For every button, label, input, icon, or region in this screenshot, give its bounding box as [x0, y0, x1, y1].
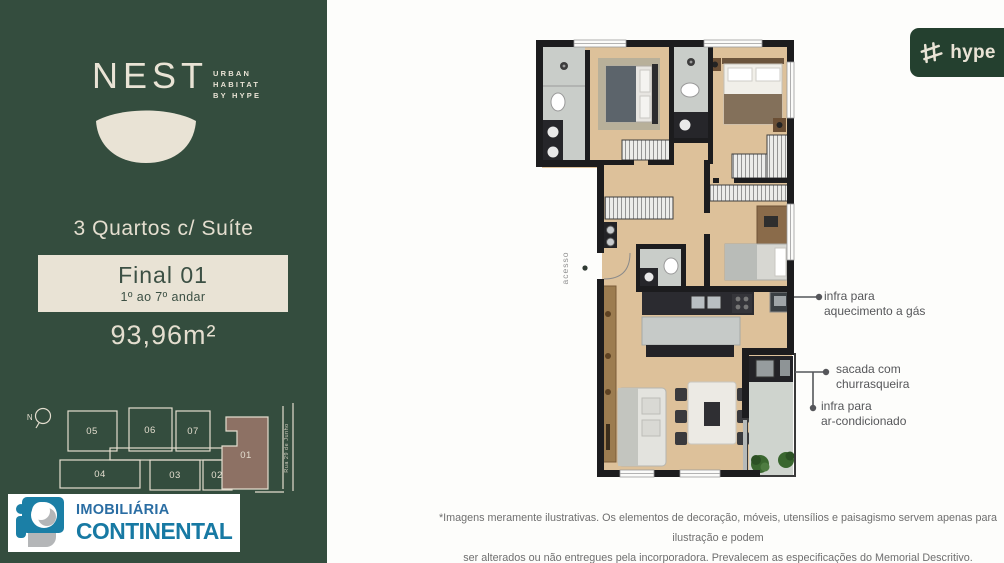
annotation-gas: infra para aquecimento a gás [824, 289, 925, 319]
final-badge: Final 01 1º ao 7º andar [38, 255, 288, 312]
annotation-air-conditioning: infra para ar-condicionado [821, 399, 906, 429]
keyplan-unit-06-label: 06 [144, 425, 156, 436]
agency-logo: IMOBILIÁRIA CONTINENTAL [8, 494, 240, 552]
bowl-icon [94, 109, 261, 170]
keyplan-unit-04-label: 04 [94, 469, 106, 480]
access-label: acesso [560, 252, 570, 285]
disclaimer-line2: ser alterados ou não entregues pela inco… [430, 549, 1004, 563]
disclaimer-line1: *Imagens meramente ilustrativas. Os elem… [430, 509, 1004, 549]
floorplan: acesso [528, 36, 1004, 494]
keyplan-unit-03-label: 03 [169, 470, 181, 481]
badge-title: Final 01 [38, 262, 288, 289]
keyplan-unit-07-label: 07 [187, 426, 199, 437]
north-label: N [27, 413, 33, 422]
agency-name-line1: IMOBILIÁRIA [76, 503, 237, 518]
access-dot [582, 265, 587, 270]
street-label: Rua 29 de Junho [284, 423, 290, 472]
agency-name-line2: CONTINENTAL [76, 520, 232, 544]
keyplan: N 05 06 07 04 03 02 01 Rua 29 de Junho [22, 401, 307, 501]
area-value: 93,96m² [0, 320, 327, 351]
unit-type-title: 3 Quartos c/ Suíte [0, 217, 327, 241]
keyplan-unit-05-label: 05 [86, 426, 98, 437]
keyplan-unit-02-label: 02 [211, 470, 223, 481]
nest-logo: NEST URBAN HABITAT BY HYPE [92, 58, 261, 170]
badge-subtitle: 1º ao 7º andar [38, 290, 288, 304]
nest-wordmark: NEST [92, 58, 208, 94]
nest-tagline: URBAN HABITAT BY HYPE [213, 69, 261, 102]
page: NEST URBAN HABITAT BY HYPE 3 Quartos c/ … [0, 0, 1004, 563]
sidebar: NEST URBAN HABITAT BY HYPE 3 Quartos c/ … [0, 0, 327, 563]
keyplan-unit-01-label: 01 [240, 450, 252, 461]
bedroom1-furniture [598, 58, 660, 130]
north-indicator-icon [36, 409, 51, 424]
agency-logo-mark-icon [14, 496, 66, 550]
annotation-balcony-grill: sacada com churrasqueira [836, 362, 909, 392]
keyplan-corridor [110, 448, 230, 460]
disclaimer: *Imagens meramente ilustrativas. Os elem… [430, 509, 1004, 563]
access-label-group: acesso [560, 252, 588, 285]
